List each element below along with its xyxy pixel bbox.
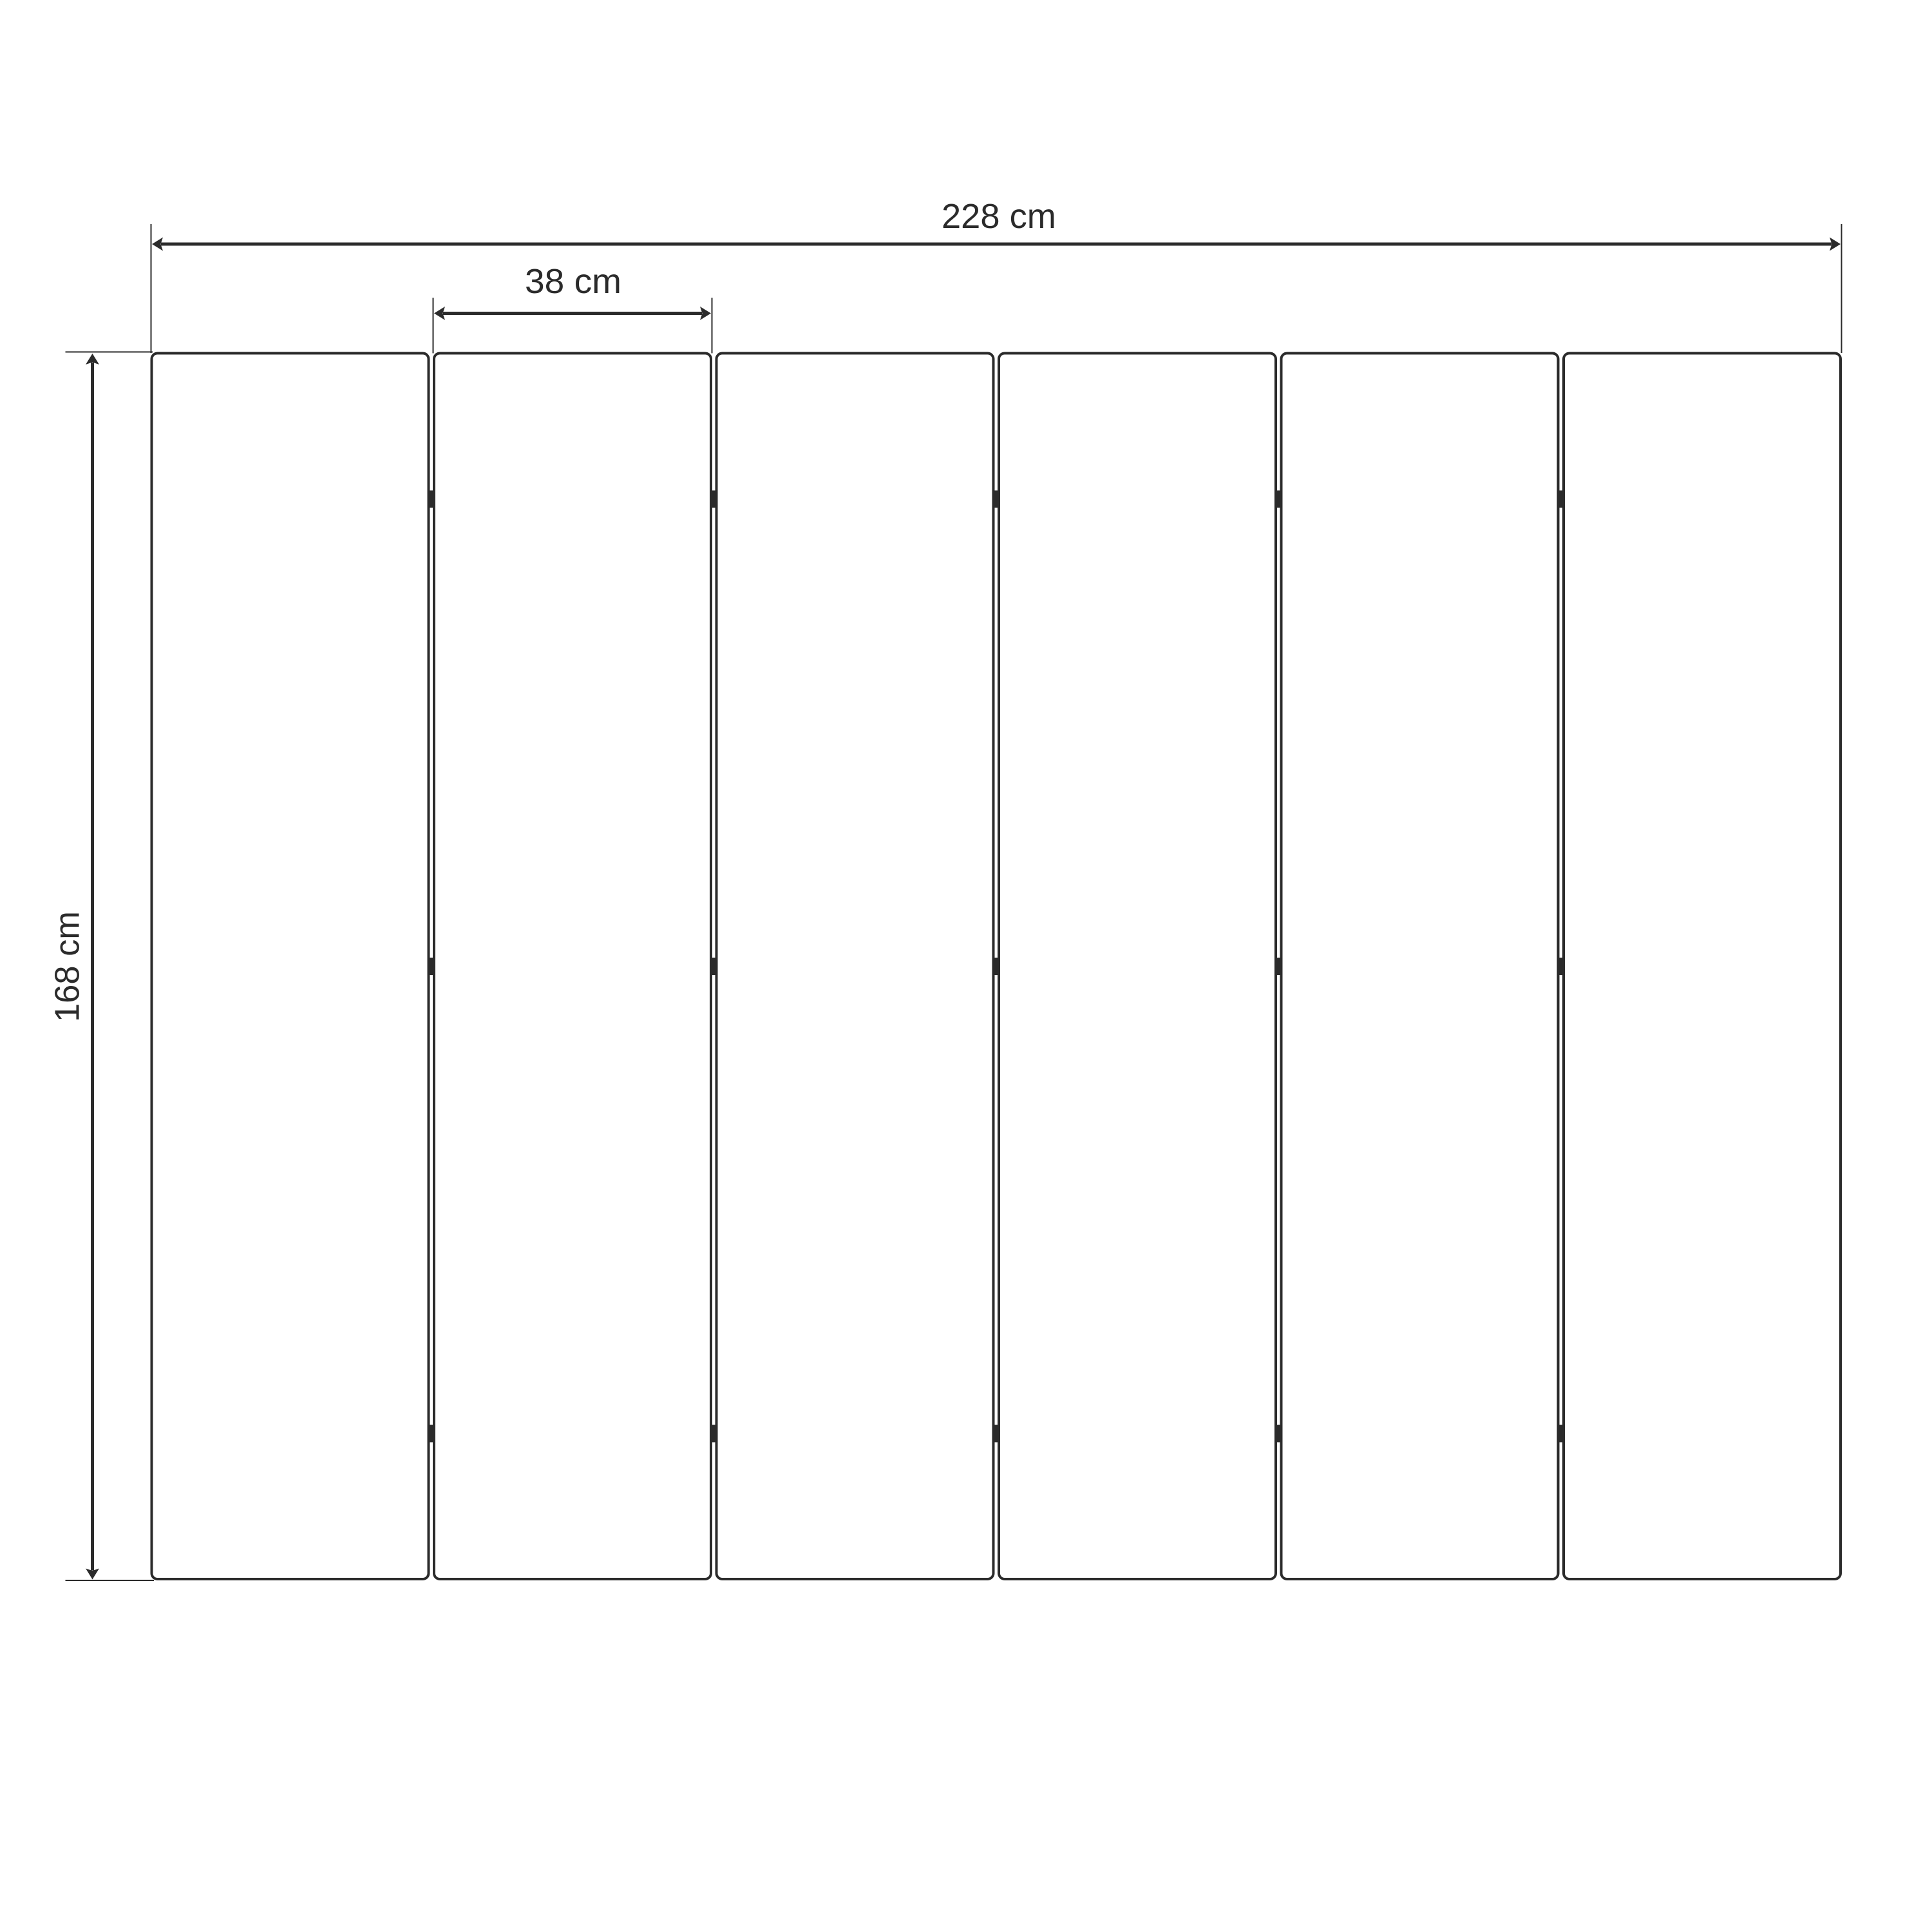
svg-text:168 cm: 168 cm bbox=[48, 911, 87, 1022]
svg-text:38 cm: 38 cm bbox=[525, 262, 621, 301]
svg-text:228 cm: 228 cm bbox=[942, 197, 1056, 236]
